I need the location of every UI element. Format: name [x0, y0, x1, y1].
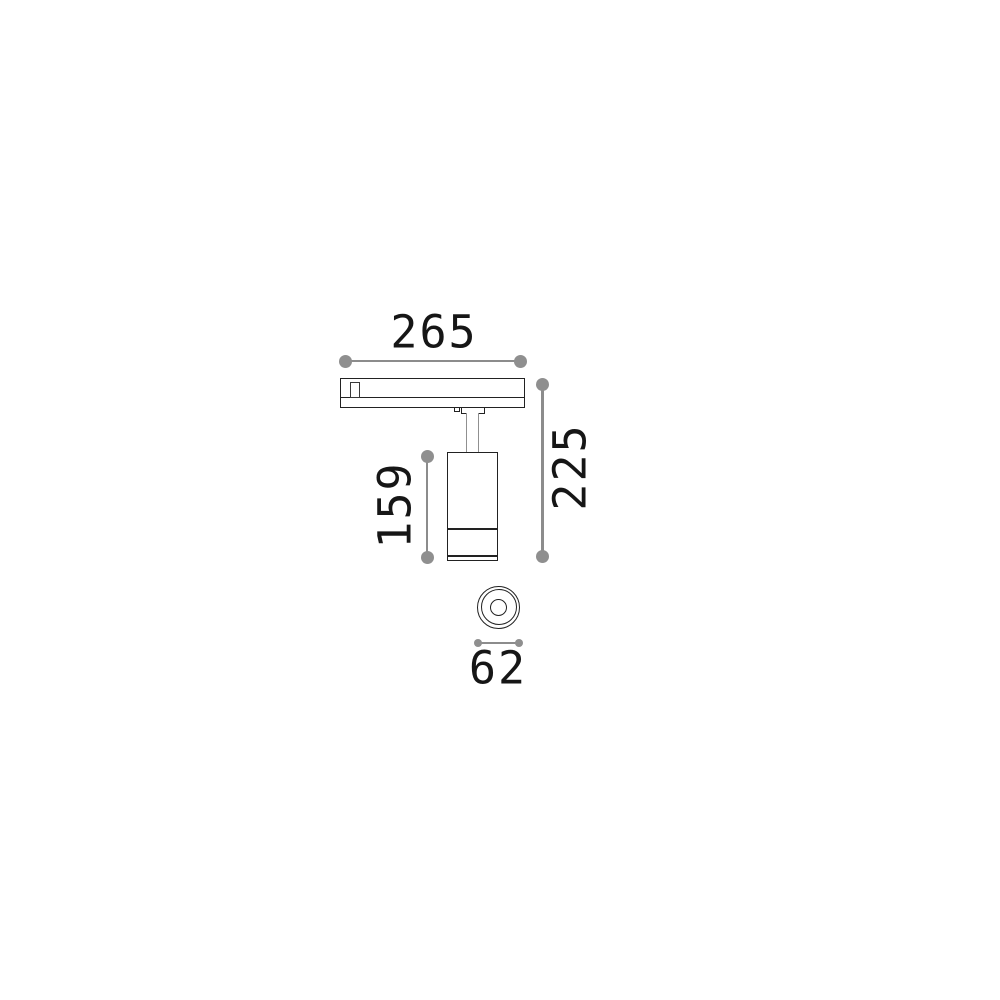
lamp-body-seam-line: [448, 528, 497, 530]
dimension-label-diameter: 62: [469, 646, 527, 691]
dimension-line-top: [345, 360, 520, 363]
dimension-endpoint-dot: [536, 550, 549, 563]
dimension-drawing-canvas: 265 159 225 62: [0, 0, 1000, 1000]
track-rail-groove-line: [341, 397, 524, 399]
adapter-clip: [454, 408, 460, 412]
lamp-bottom-view-lens-circle: [490, 599, 507, 616]
lamp-body: [447, 452, 498, 561]
dimension-endpoint-dot: [536, 378, 549, 391]
dimension-line-right: [541, 384, 544, 557]
track-rail-end-slot: [350, 382, 360, 398]
dimension-endpoint-dot: [421, 551, 434, 564]
track-rail-body: [340, 378, 525, 408]
dimension-label-track-width: 265: [390, 310, 477, 355]
dimension-endpoint-dot: [339, 355, 352, 368]
dimension-endpoint-dot: [514, 355, 527, 368]
lamp-bezel-line: [448, 555, 497, 557]
dimension-endpoint-dot: [421, 450, 434, 463]
dimension-line-left: [426, 456, 429, 557]
lamp-stem: [466, 413, 479, 453]
dimension-label-body-length: 159: [373, 461, 418, 548]
dimension-label-total-height: 225: [548, 423, 593, 510]
